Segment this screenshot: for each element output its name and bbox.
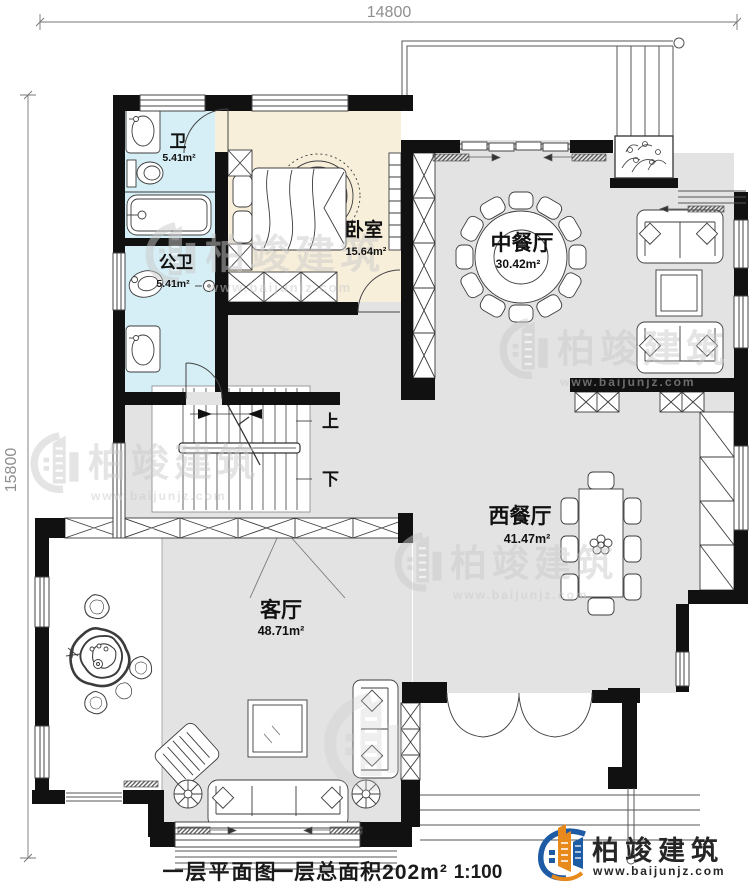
living-sofa-bottom	[208, 780, 348, 828]
dining-sofa-top	[637, 210, 723, 263]
room-label-chinese-dining: 中餐厅	[491, 231, 554, 255]
window	[35, 577, 49, 627]
floor-plan-drawing: 上 下	[0, 0, 750, 892]
brand-name: 柏竣建筑	[592, 835, 724, 866]
room-label-bedroom: 卧室	[345, 218, 383, 241]
brand-logo-icon	[541, 824, 585, 879]
window	[734, 446, 748, 530]
bedroom-closet-strip	[389, 153, 401, 250]
room-label-public-bath: 公卫	[159, 253, 193, 272]
plan-scale: 1:100	[454, 862, 503, 883]
room-area-bedroom: 15.64m²	[346, 246, 387, 258]
watermark-instance: 柏竣建筑 www.baijunjz.com	[34, 436, 260, 503]
room-area-chinese-dining: 30.42m²	[496, 257, 541, 271]
window	[175, 822, 360, 847]
stairs-down-label: 下	[322, 470, 339, 489]
brand-logo: 柏竣建筑 www.baijunjz.com	[541, 824, 726, 879]
room-area-public-bath: 5.41m²	[156, 278, 190, 290]
stairs-up-label: 上	[322, 412, 339, 431]
side-table-left	[174, 780, 202, 808]
window	[35, 726, 49, 778]
room-label-living: 客厅	[260, 598, 302, 622]
room-area-living: 48.71m²	[258, 624, 305, 638]
window	[140, 95, 205, 111]
svg-text:www.baijunjz.com: www.baijunjz.com	[207, 280, 352, 295]
western-dining-side-cabinet	[700, 412, 734, 590]
garden-gate-steps	[66, 793, 122, 801]
svg-text:www.baijunjz.com: www.baijunjz.com	[559, 375, 696, 389]
svg-text:www.baijunjz.com: www.baijunjz.com	[90, 489, 227, 503]
plan-title: 一层平面图	[163, 861, 278, 884]
dimension-left: 15800	[3, 448, 20, 493]
dining-square-table	[656, 270, 702, 316]
terrace	[402, 38, 684, 137]
window	[113, 253, 125, 310]
floor-plan-page: 上 下	[0, 0, 750, 892]
bath-sink	[126, 107, 160, 153]
entry-planter	[615, 136, 673, 178]
caption: 一层平面图 一层总面积202m² 1:100	[163, 860, 503, 884]
window	[734, 220, 748, 268]
room-area-western-dining: 41.47m²	[504, 532, 551, 546]
brand-url: www.baijunjz.com	[592, 864, 725, 878]
svg-text:柏竣建筑: 柏竣建筑	[450, 542, 618, 584]
svg-text:www.baijunjz.com: www.baijunjz.com	[452, 588, 589, 602]
svg-text:柏竣建筑: 柏竣建筑	[88, 443, 260, 485]
plan-total-area: 一层总面积202m²	[272, 860, 448, 884]
window	[676, 652, 689, 686]
window	[734, 296, 748, 348]
window	[252, 95, 348, 111]
room-label-bath: 卫	[170, 132, 187, 151]
room-label-western-dining: 西餐厅	[489, 504, 552, 528]
coffee-table	[248, 700, 307, 757]
hall-cabinet-column	[413, 153, 435, 378]
garden-rocks	[66, 595, 155, 716]
public-bath-sink	[126, 326, 160, 372]
dimension-top: 14800	[367, 4, 412, 21]
entry-cabinet-strip	[401, 703, 420, 780]
entry-folding-door	[447, 693, 592, 737]
room-area-bath: 5.41m²	[162, 152, 196, 164]
svg-text:柏竣建筑: 柏竣建筑	[557, 329, 729, 371]
